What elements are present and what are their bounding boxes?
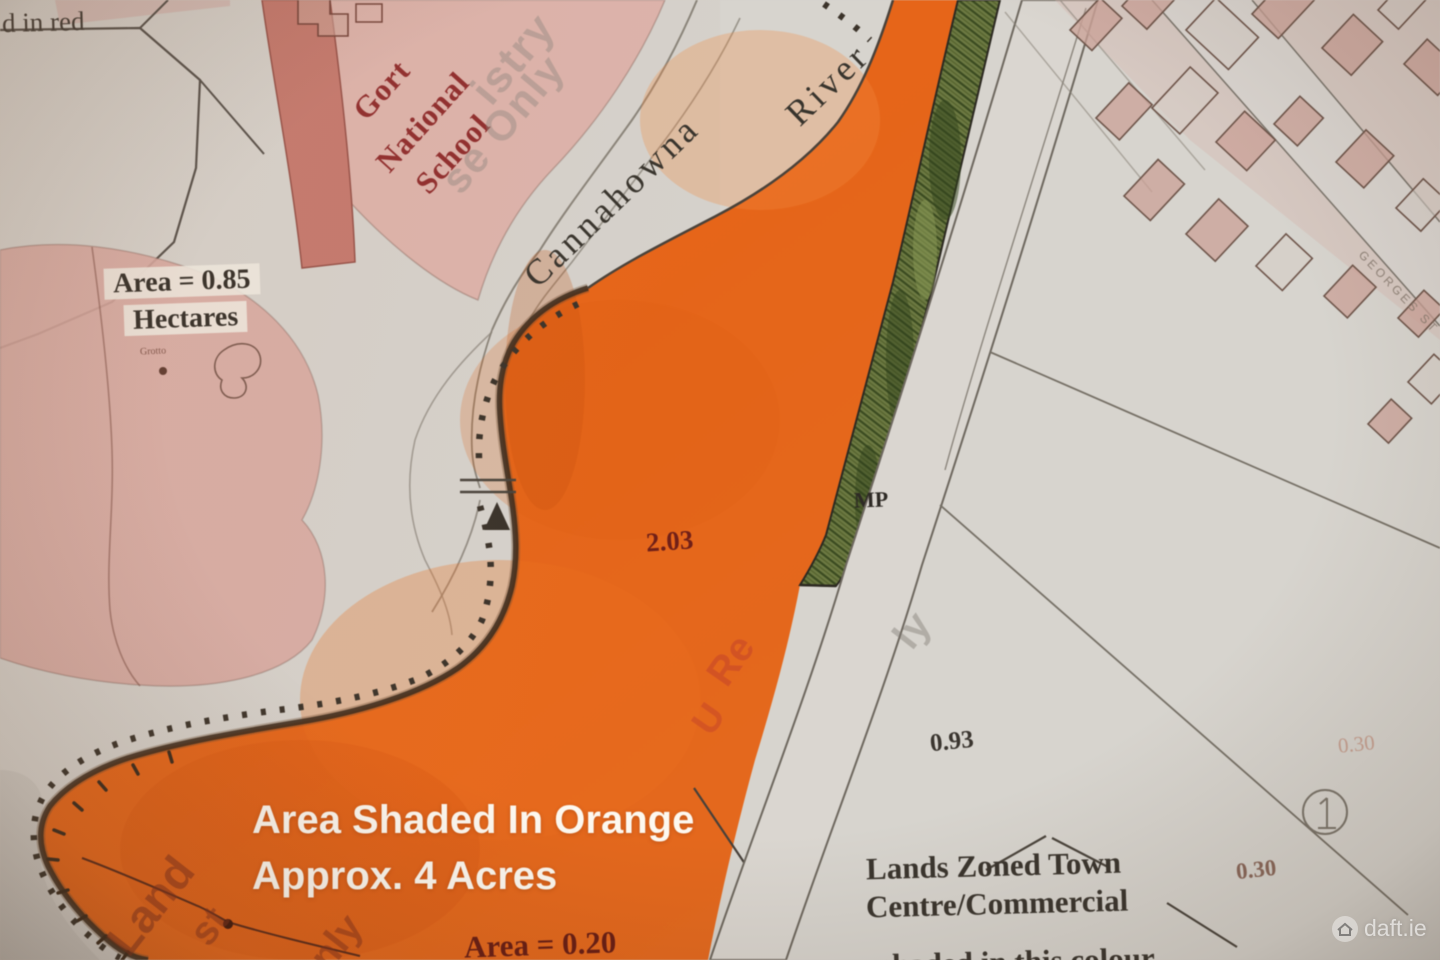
orange-annotation-line2: Approx. 4 Acres [252,856,557,898]
mp-marker-label: MP [854,488,889,512]
grotto-dot [159,367,167,375]
brand-watermark: daft.ie [1332,915,1427,942]
orange-annotation-line1: Area Shaded In Orange [252,800,694,842]
zoning-note-line1: Lands Zoned Town [866,847,1122,886]
brand-watermark-text: daft.ie [1364,915,1427,942]
area-020-partial-label: Area = 0.20 [463,926,616,960]
map-graphics [0,0,1440,960]
parcel-area-203-label: 2.03 [645,525,694,556]
parcel-area-030-faint-label: 0.30 [1337,732,1376,758]
daft-house-icon [1332,916,1358,942]
parcel-area-030-label: 0.30 [1235,856,1278,884]
area-085-label: Area = 0.85 [104,263,261,300]
partial-note-top-left: d in red [2,7,85,37]
map-photo: d in red Area = 0.85 Hectares Grotto Gor… [0,0,1440,960]
grotto-label: Grotto [140,346,167,358]
zoning-note-line2: Centre/Commercial [866,885,1129,924]
parcel-area-093-label: 0.93 [929,727,975,757]
area-085-unit-label: Hectares [123,301,247,336]
